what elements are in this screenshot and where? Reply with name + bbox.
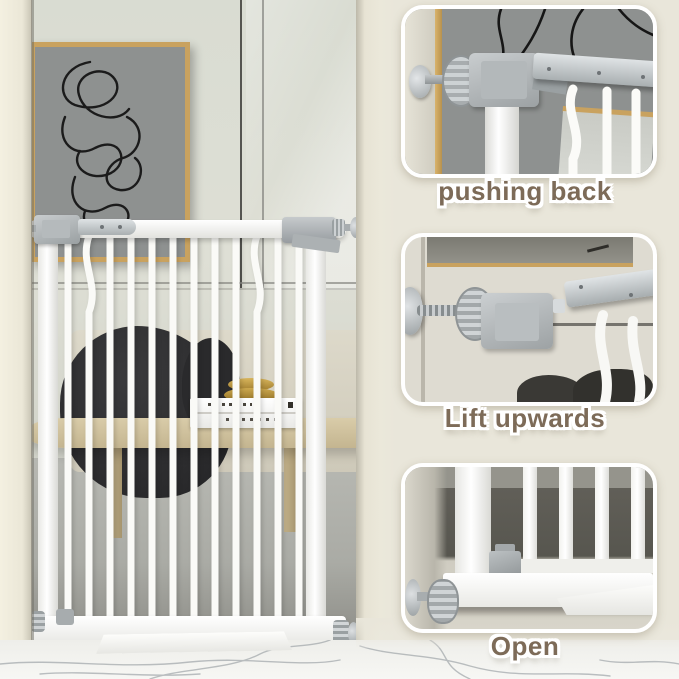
screw-dot xyxy=(629,293,633,297)
gate-bar xyxy=(595,467,609,567)
caption-open: Open xyxy=(393,631,657,662)
gate-threshold-ramp xyxy=(96,631,292,653)
doorway-wall-left xyxy=(0,0,32,679)
gate-frame-post-left xyxy=(38,228,58,626)
screw-dot xyxy=(579,285,583,289)
room-scene xyxy=(0,0,396,679)
gate-bars-closeup xyxy=(405,237,653,402)
gate-bar xyxy=(631,467,645,567)
latch-release-tab xyxy=(553,299,565,313)
product-image: pushing back Lift upwards xyxy=(0,0,679,679)
callout-panel-pushing-back xyxy=(401,5,657,178)
gate-frame-post-right xyxy=(306,232,326,626)
gate-rail-behind xyxy=(515,559,653,573)
gate-bottom-latch xyxy=(56,609,74,625)
doorway-edge-shadow xyxy=(31,0,34,648)
gate-latch-face xyxy=(42,220,70,238)
gate-vertical-bars xyxy=(0,0,396,679)
gate-frame-post xyxy=(455,467,491,585)
caption-lift-upwards: Lift upwards xyxy=(393,403,657,434)
gate-bar xyxy=(523,467,537,567)
doorway-wall-right xyxy=(356,0,396,650)
callout-panel-lift-upwards xyxy=(401,233,657,406)
screw-dot xyxy=(100,225,104,229)
screw-dot xyxy=(118,225,122,229)
gate-bar xyxy=(559,467,573,567)
caption-pushing-back: pushing back xyxy=(393,176,657,207)
gate-bars-closeup xyxy=(405,9,653,174)
callout-panel-open xyxy=(401,463,657,633)
pressure-mount-knob xyxy=(427,579,459,624)
gate-handle xyxy=(78,219,136,235)
